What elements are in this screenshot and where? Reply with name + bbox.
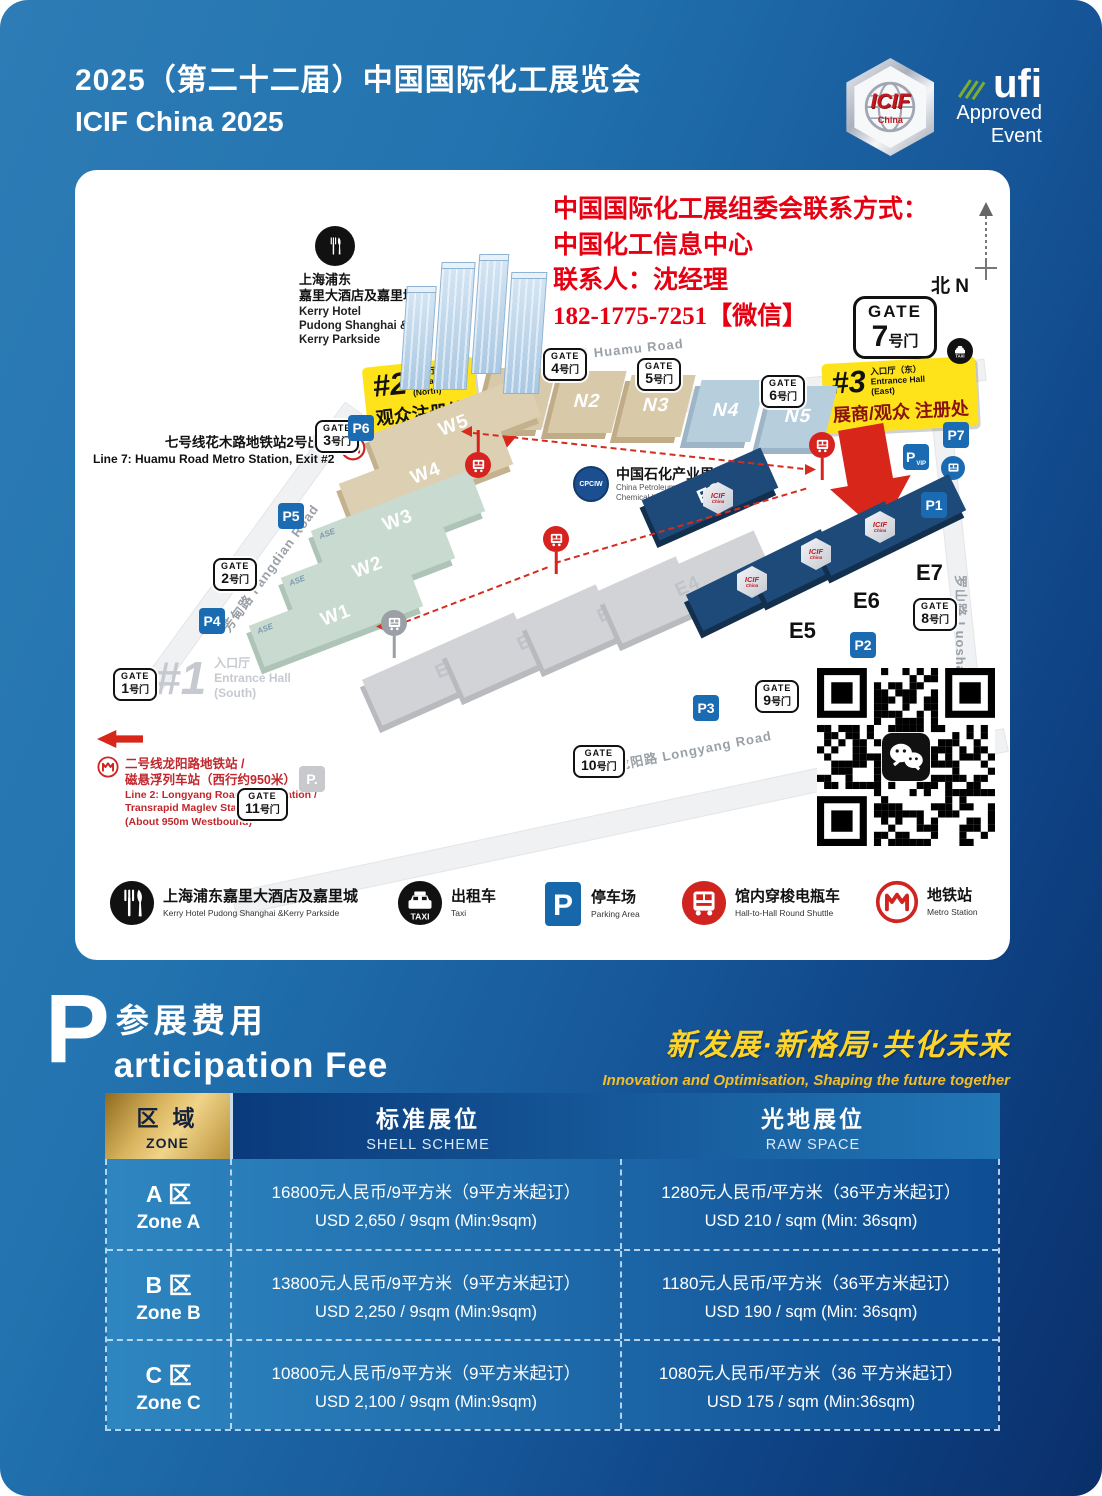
hall-N4: N4 <box>686 380 765 442</box>
zone-en: Zone B <box>136 1303 200 1325</box>
title-zh: 2025（第二十二届）中国国际化工展览会 <box>75 62 642 100</box>
shell-price-cell: 16800元人民币/9平方米（9平方米起订）USD 2,650 / 9sqm (… <box>230 1159 620 1249</box>
shell-price-zh: 13800元人民币/9平方米（9平方米起订） <box>272 1269 581 1294</box>
legend-item-4: 馆内穿梭电瓶车Hall-to-Hall Round Shuttle <box>681 880 840 926</box>
north-compass: 北 N <box>931 200 999 298</box>
legend-en: Kerry Hotel Pudong Shanghai &Kerry Parks… <box>163 908 358 918</box>
gate-sign-g9: GATE9号门 <box>755 680 799 713</box>
shell-price-en: USD 2,250 / 9sqm (Min:9sqm) <box>315 1303 537 1322</box>
slogan: 新发展·新格局·共化未来 Innovation and Optimisation… <box>603 1020 1011 1089</box>
line2-en-1: Line 2: Longyang Road Metro Station / <box>125 789 317 803</box>
raw-price-zh: 1080元人民币/平方米（36 平方米起订） <box>659 1359 963 1384</box>
gate-sign-g10: GATE10号门 <box>573 745 625 778</box>
line2-en-3: (About 950m Westbound) <box>125 816 317 830</box>
raw-header-zh: 光地展位 <box>761 1100 865 1134</box>
hotel-en-1: Kerry Hotel <box>299 305 416 319</box>
fee-table-header: 区 域 ZONE 标准展位 SHELL SCHEME 光地展位 RAW SPAC… <box>105 1093 1000 1159</box>
legend-zh: 馆内穿梭电瓶车 <box>735 888 840 906</box>
legend-en: Taxi <box>451 908 496 918</box>
legend-en: Metro Station <box>927 907 978 917</box>
ufi-approved: Approved <box>956 102 1042 125</box>
gate-7-sign: GATE 7号门 <box>853 296 937 359</box>
shuttle-icon <box>681 880 727 926</box>
icif-logo-sub: China <box>878 115 903 125</box>
gate-sign-g11: GATE11号门 <box>237 788 288 821</box>
parking-tag-P1: P1 <box>921 492 947 518</box>
hall-W1-label: W1 <box>318 600 354 631</box>
west-arrow-icon <box>97 730 143 748</box>
zone-header-zh: 区 域 <box>136 1101 198 1133</box>
entrance-3-en1: Entrance Hall <box>870 374 925 387</box>
line7-zh: 七号线花木路地铁站2号出口 <box>93 434 334 452</box>
parking-tag-P4: P4 <box>199 608 225 634</box>
slogan-en: Innovation and Optimisation, Shaping the… <box>603 1072 1011 1089</box>
hall-E5-label: E5 <box>789 618 816 644</box>
legend-item-5: 地铁站Metro Station <box>875 880 978 924</box>
icif-logo-text: ICIF <box>871 90 911 114</box>
hall-N5-label: N5 <box>782 406 814 428</box>
gate-sign-g4: GATE4号门 <box>543 348 587 381</box>
legend-zh: 地铁站 <box>927 887 978 905</box>
raw-price-cell: 1180元人民币/平方米（36平方米起订）USD 190 / sqm (Min:… <box>620 1251 1000 1339</box>
gate-sign-g6: GATE6号门 <box>761 375 805 408</box>
hall-N3-label: N3 <box>640 395 672 417</box>
legend-en: Parking Area <box>591 909 640 919</box>
poster: 2025（第二十二届）中国国际化工展览会 ICIF China 2025 ICI… <box>0 0 1102 1496</box>
route-arrowhead-icon <box>805 464 816 475</box>
compass-en: N <box>955 276 969 297</box>
cpciw-logo-icon: CPCIW <box>573 466 609 502</box>
header-titles: 2025（第二十二届）中国国际化工展览会 ICIF China 2025 <box>75 62 642 138</box>
shuttle-stop-icon <box>381 610 407 636</box>
participation-zh: 参展费用 <box>116 994 389 1042</box>
ase-logo: ASE <box>318 527 337 541</box>
contact-line-2: 中国化工信息中心 <box>553 228 953 264</box>
gate-7-gate: GATE <box>868 303 922 321</box>
zone-en: Zone A <box>137 1212 201 1234</box>
raw-price-en: USD 210 / sqm (Min: 36sqm) <box>705 1212 918 1231</box>
parking-icon: P <box>543 880 583 928</box>
taxi-icon: TAXI <box>397 880 443 926</box>
hall-E6-label: E6 <box>853 588 880 614</box>
participation-big-letter: P <box>45 986 110 1071</box>
hotel-zh-1: 上海浦东 <box>299 272 416 288</box>
shell-scheme-header: 标准展位 SHELL SCHEME <box>233 1093 623 1159</box>
fee-row-zone-c: C 区Zone C10800元人民币/9平方米（9平方米起订）USD 2,100… <box>107 1339 998 1429</box>
icif-logo-inner: ICIF China <box>854 66 926 148</box>
entrance-3-en2: (East) <box>871 386 895 397</box>
metro-icon <box>97 756 119 829</box>
parking-tag-P7: P7 <box>943 422 969 448</box>
shell-price-en: USD 2,100 / 9sqm (Min:9sqm) <box>315 1393 537 1412</box>
parking-tag-P5: P5 <box>278 503 304 529</box>
fee-table: 区 域 ZONE 标准展位 SHELL SCHEME 光地展位 RAW SPAC… <box>105 1093 1000 1431</box>
taxi-icon: TAXI <box>947 338 973 364</box>
zone-zh: B 区 <box>146 1266 192 1300</box>
shuttle-stop-icon <box>543 526 569 552</box>
venue-map: 花木路 Huamu Road 芳甸路 Fangdian Road 龙阳路 Lon… <box>75 170 1010 960</box>
map-legend: 上海浦东嘉里大酒店及嘉里城Kerry Hotel Pudong Shanghai… <box>75 872 1010 952</box>
contact-line-3: 联系人：沈经理 <box>553 263 953 299</box>
shell-price-cell: 13800元人民币/9平方米（9平方米起订）USD 2,250 / 9sqm (… <box>230 1251 620 1339</box>
hall-N2-label: N2 <box>571 391 603 413</box>
shell-header-zh: 标准展位 <box>376 1100 480 1134</box>
shell-price-zh: 16800元人民币/9平方米（9平方米起订） <box>272 1178 581 1203</box>
entrance-1-en1: Entrance Hall <box>214 671 291 685</box>
metro-icon <box>875 880 919 924</box>
venue-map-card: 花木路 Huamu Road 芳甸路 Fangdian Road 龙阳路 Lon… <box>75 170 1010 960</box>
zone-zh: C 区 <box>146 1356 192 1390</box>
line2-zh-2: 磁悬浮列车站（西行约950米） <box>125 772 317 788</box>
svg-text:P: P <box>553 889 573 922</box>
line7-en: Line 7: Huamu Road Metro Station, Exit #… <box>93 452 334 468</box>
icif-logo: ICIF China <box>846 58 934 156</box>
entrance-1-en2: (South) <box>214 686 256 700</box>
zone-header-cell: 区 域 ZONE <box>105 1093 230 1159</box>
header: 2025（第二十二届）中国国际化工展览会 ICIF China 2025 ICI… <box>75 62 1042 156</box>
raw-price-cell: 1280元人民币/平方米（36平方米起订）USD 210 / sqm (Min:… <box>620 1159 1000 1249</box>
zone-cell: A 区Zone A <box>107 1159 230 1249</box>
raw-price-en: USD 175 / sqm (Min:36sqm) <box>707 1393 915 1412</box>
compass-zh: 北 <box>931 276 950 297</box>
svg-text:TAXI: TAXI <box>411 911 430 921</box>
ase-logo: ASE <box>256 622 275 636</box>
legend-zh: 停车场 <box>591 889 640 907</box>
wechat-qr-code <box>817 668 995 846</box>
north-arrow-icon <box>973 200 999 292</box>
shell-header-en: SHELL SCHEME <box>366 1137 489 1153</box>
ufi-hatch-icon <box>957 74 991 102</box>
shell-price-zh: 10800元人民币/9平方米（9平方米起订） <box>272 1359 581 1384</box>
zone-cell: B 区Zone B <box>107 1251 230 1339</box>
shuttle-stop-stem <box>821 458 824 480</box>
ufi-event: Event <box>991 125 1042 148</box>
legend-item-1: 上海浦东嘉里大酒店及嘉里城Kerry Hotel Pudong Shanghai… <box>109 880 358 926</box>
shuttle-stop-stem <box>393 636 396 658</box>
raw-price-cell: 1080元人民币/平方米（36 平方米起订）USD 175 / sqm (Min… <box>620 1341 1000 1429</box>
legend-zh: 上海浦东嘉里大酒店及嘉里城 <box>163 888 358 906</box>
legend-zh: 出租车 <box>451 888 496 906</box>
slogan-zh: 新发展·新格局·共化未来 <box>603 1020 1011 1064</box>
hall-N4-label: N4 <box>710 400 742 422</box>
legend-item-3: P停车场Parking Area <box>543 880 640 928</box>
ufi-name: ufi <box>993 66 1042 102</box>
parking-tag-P2: P2 <box>850 632 876 658</box>
line2-en-2: Transrapid Maglev Station <box>125 802 317 816</box>
hotel-en-2: Pudong Shanghai & <box>299 319 416 333</box>
fee-row-zone-b: B 区Zone B13800元人民币/9平方米（9平方米起订）USD 2,250… <box>107 1249 998 1339</box>
shuttle-stop-stem <box>555 552 558 574</box>
wechat-icon <box>882 733 930 781</box>
gate-sign-g1: GATE1号门 <box>113 668 157 701</box>
parking-tag-P3: P3 <box>693 695 719 721</box>
parking-tag-Pgray: P. <box>299 766 325 792</box>
title-en: ICIF China 2025 <box>75 106 642 138</box>
header-logos: ICIF China ufi Approved Event <box>846 58 1042 156</box>
gate-7-suffix: 号门 <box>888 333 918 350</box>
ase-logo: ASE <box>288 574 307 588</box>
raw-space-header: 光地展位 RAW SPACE <box>623 1093 1003 1159</box>
entrance-1-number: #1 <box>155 658 206 699</box>
gate-sign-g2: GATE2号门 <box>213 558 257 591</box>
zone-zh: A 区 <box>146 1175 191 1209</box>
fee-row-zone-a: A 区Zone A16800元人民币/9平方米（9平方米起订）USD 2,650… <box>107 1159 998 1249</box>
participation-heading: P 参展费用 articipation Fee <box>45 986 388 1086</box>
zone-en: Zone C <box>136 1393 200 1415</box>
building-tower <box>471 258 509 374</box>
shuttle-stop-icon <box>809 432 835 458</box>
contact-line-1: 中国国际化工展组委会联系方式： <box>553 192 953 228</box>
gate-sign-g8: GATE8号门 <box>913 598 957 631</box>
parking-tag-Pvip: PVIP <box>903 444 929 470</box>
booth-type-header: 标准展位 SHELL SCHEME 光地展位 RAW SPACE <box>230 1093 1000 1159</box>
shuttle-stop-icon <box>465 452 491 478</box>
line2-zh-1: 二号线龙阳路地铁站 / <box>125 756 317 772</box>
svg-text:TAXI: TAXI <box>955 354 964 359</box>
longyang-road-label: 龙阳路 Longyang Road <box>615 725 774 774</box>
zone-cell: C 区Zone C <box>107 1341 230 1429</box>
fee-table-body: A 区Zone A16800元人民币/9平方米（9平方米起订）USD 2,650… <box>105 1159 1000 1431</box>
participation-en: articipation Fee <box>114 1046 389 1086</box>
raw-price-en: USD 190 / sqm (Min: 36sqm) <box>705 1303 918 1322</box>
raw-header-en: RAW SPACE <box>766 1137 860 1153</box>
entrance-3-number: #3 <box>831 368 867 398</box>
legend-en: Hall-to-Hall Round Shuttle <box>735 908 840 918</box>
kerry-hotel-label: 上海浦东 嘉里大酒店及嘉里城 Kerry Hotel Pudong Shangh… <box>299 272 416 348</box>
legend-item-2: TAXI出租车Taxi <box>397 880 496 926</box>
restaurant-icon <box>315 226 355 266</box>
gate-7-num: 7 <box>872 320 889 353</box>
shell-price-cell: 10800元人民币/9平方米（9平方米起订）USD 2,100 / 9sqm (… <box>230 1341 620 1429</box>
raw-price-zh: 1180元人民币/平方米（36平方米起订） <box>662 1269 960 1294</box>
hotel-en-3: Kerry Parkside <box>299 333 416 347</box>
zone-header-en: ZONE <box>146 1135 189 1151</box>
gate-sign-g5: GATE5号门 <box>637 358 681 391</box>
ufi-logo: ufi Approved Event <box>956 66 1042 148</box>
hotel-zh-2: 嘉里大酒店及嘉里城 <box>299 288 416 304</box>
hall-E7-label: E7 <box>916 560 943 586</box>
restaurant-icon <box>109 880 155 926</box>
raw-price-zh: 1280元人民币/平方米（36平方米起订） <box>661 1178 960 1203</box>
parking-tag-P6: P6 <box>348 415 374 441</box>
shell-price-en: USD 2,650 / 9sqm (Min:9sqm) <box>315 1212 537 1231</box>
shuttle-stop-stem <box>477 430 480 452</box>
